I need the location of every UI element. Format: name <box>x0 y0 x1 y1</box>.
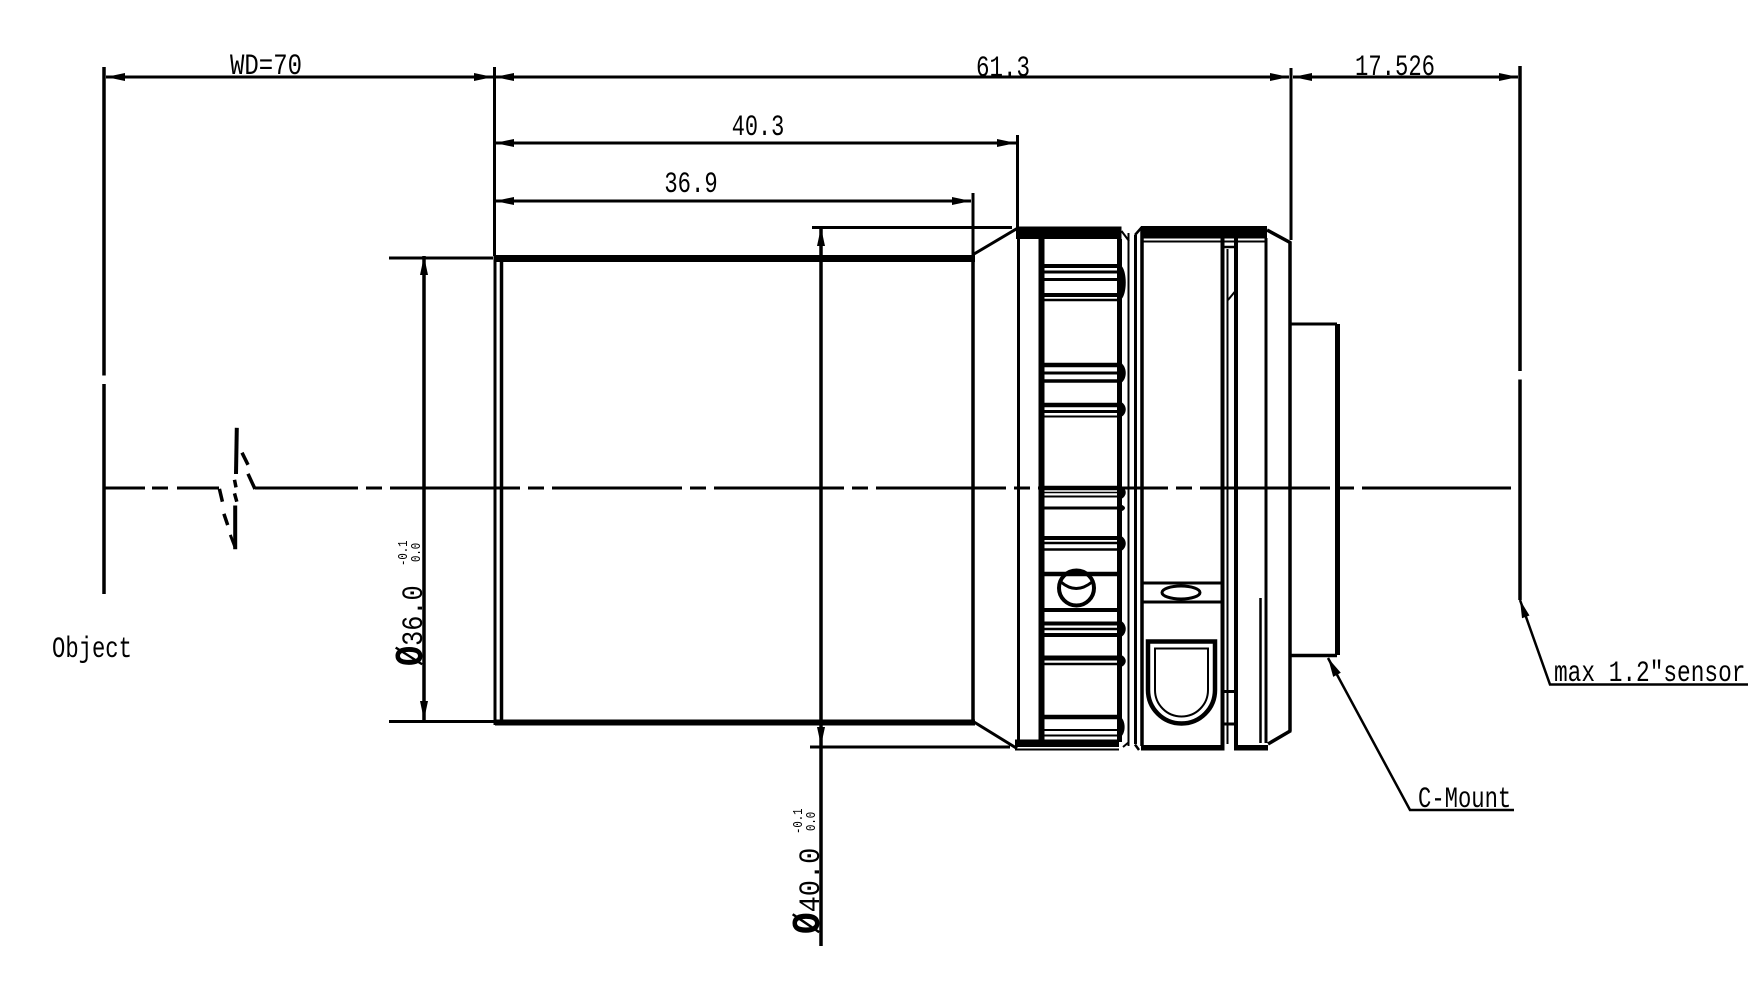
svg-text:36.9: 36.9 <box>664 167 717 201</box>
svg-text:WD=70: WD=70 <box>230 50 302 84</box>
svg-text:17.526: 17.526 <box>1355 50 1435 84</box>
svg-text:Object: Object <box>52 632 132 666</box>
svg-text:-0.1: -0.1 <box>791 808 807 834</box>
svg-text:61.3: 61.3 <box>976 51 1030 85</box>
svg-text:40.3: 40.3 <box>732 110 785 144</box>
svg-text:C-Mount: C-Mount <box>1418 782 1511 816</box>
svg-text:-0.1: -0.1 <box>396 540 412 566</box>
svg-text:max 1.2″sensor: max 1.2″sensor <box>1554 656 1745 690</box>
svg-text:Ø40.0: Ø40.0 <box>786 848 831 934</box>
